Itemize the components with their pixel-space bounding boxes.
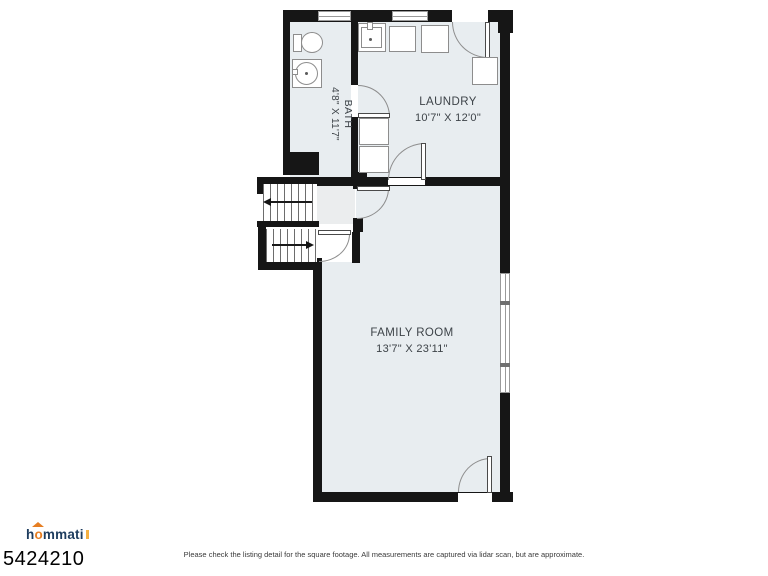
wall-right-upper xyxy=(500,22,510,273)
opening-laundry-entry xyxy=(452,10,488,22)
logo-house-roof-icon: o xyxy=(34,527,42,542)
logo-mark-icon xyxy=(86,530,89,539)
wall-left xyxy=(283,10,290,155)
family-room-name: FAMILY ROOM xyxy=(338,327,486,339)
family-room-dimensions: 13'7" X 23'11" xyxy=(338,343,486,355)
wall-right-lower xyxy=(500,393,510,502)
laundry-entry-door xyxy=(485,22,490,58)
stacked-unit-bottom-icon xyxy=(359,146,389,173)
bath-sink-spout-icon xyxy=(292,69,298,75)
stacked-unit-top-icon xyxy=(359,118,389,145)
wall-family-left xyxy=(313,258,322,502)
lower-landing-door xyxy=(318,230,351,235)
window-divider xyxy=(500,363,510,367)
laundry-label: LAUNDRY 10'7" X 12'0" xyxy=(388,96,508,124)
laundry-window xyxy=(392,11,428,21)
stair-landing-floor xyxy=(315,181,355,224)
utility-sink-drain-icon xyxy=(369,38,372,41)
floorplan: BATH 4'8" X 11'7" LAUNDRY 10'7" X 12'0" … xyxy=(0,0,768,576)
logo-text-suffix: mmati xyxy=(43,527,84,542)
family-room-window xyxy=(500,273,510,393)
laundry-family-door xyxy=(421,143,426,180)
window-divider xyxy=(500,301,510,305)
disclaimer-text: Please check the listing detail for the … xyxy=(0,550,768,559)
laundry-name: LAUNDRY xyxy=(388,96,508,108)
wall-chunk-between-doors xyxy=(353,218,363,232)
wall-landing-right xyxy=(352,232,360,263)
family-room-floor xyxy=(320,260,502,494)
wall-bath-block xyxy=(283,152,319,175)
bath-dimensions: 4'8" X 11'7" xyxy=(329,81,340,147)
opening-family-exit xyxy=(458,493,492,502)
hommati-logo: hommati xyxy=(26,527,89,542)
bath-window xyxy=(318,11,351,21)
stairs-lower-direction-line xyxy=(272,244,310,246)
wall-stairs-divider xyxy=(257,221,319,227)
laundry-dimensions: 10'7" X 12'0" xyxy=(388,112,508,124)
bath-label: BATH 4'8" X 11'7" xyxy=(328,81,354,147)
landing-family-door xyxy=(357,186,390,191)
bath-sink-drain-icon xyxy=(305,72,308,75)
stairs-arrow-right-icon xyxy=(306,241,314,249)
bath-name: BATH xyxy=(342,81,354,147)
utility-sink-faucet-icon xyxy=(367,22,373,30)
dryer-icon xyxy=(421,25,449,53)
stairs-arrow-left-icon xyxy=(263,198,271,206)
family-room-label: FAMILY ROOM 13'7" X 23'11" xyxy=(338,327,486,355)
water-heater-icon xyxy=(472,57,498,85)
toilet-bowl-icon xyxy=(301,32,323,53)
washer-icon xyxy=(389,26,416,52)
family-exit-door xyxy=(487,456,492,493)
stairs-upper-direction-line xyxy=(269,201,312,203)
